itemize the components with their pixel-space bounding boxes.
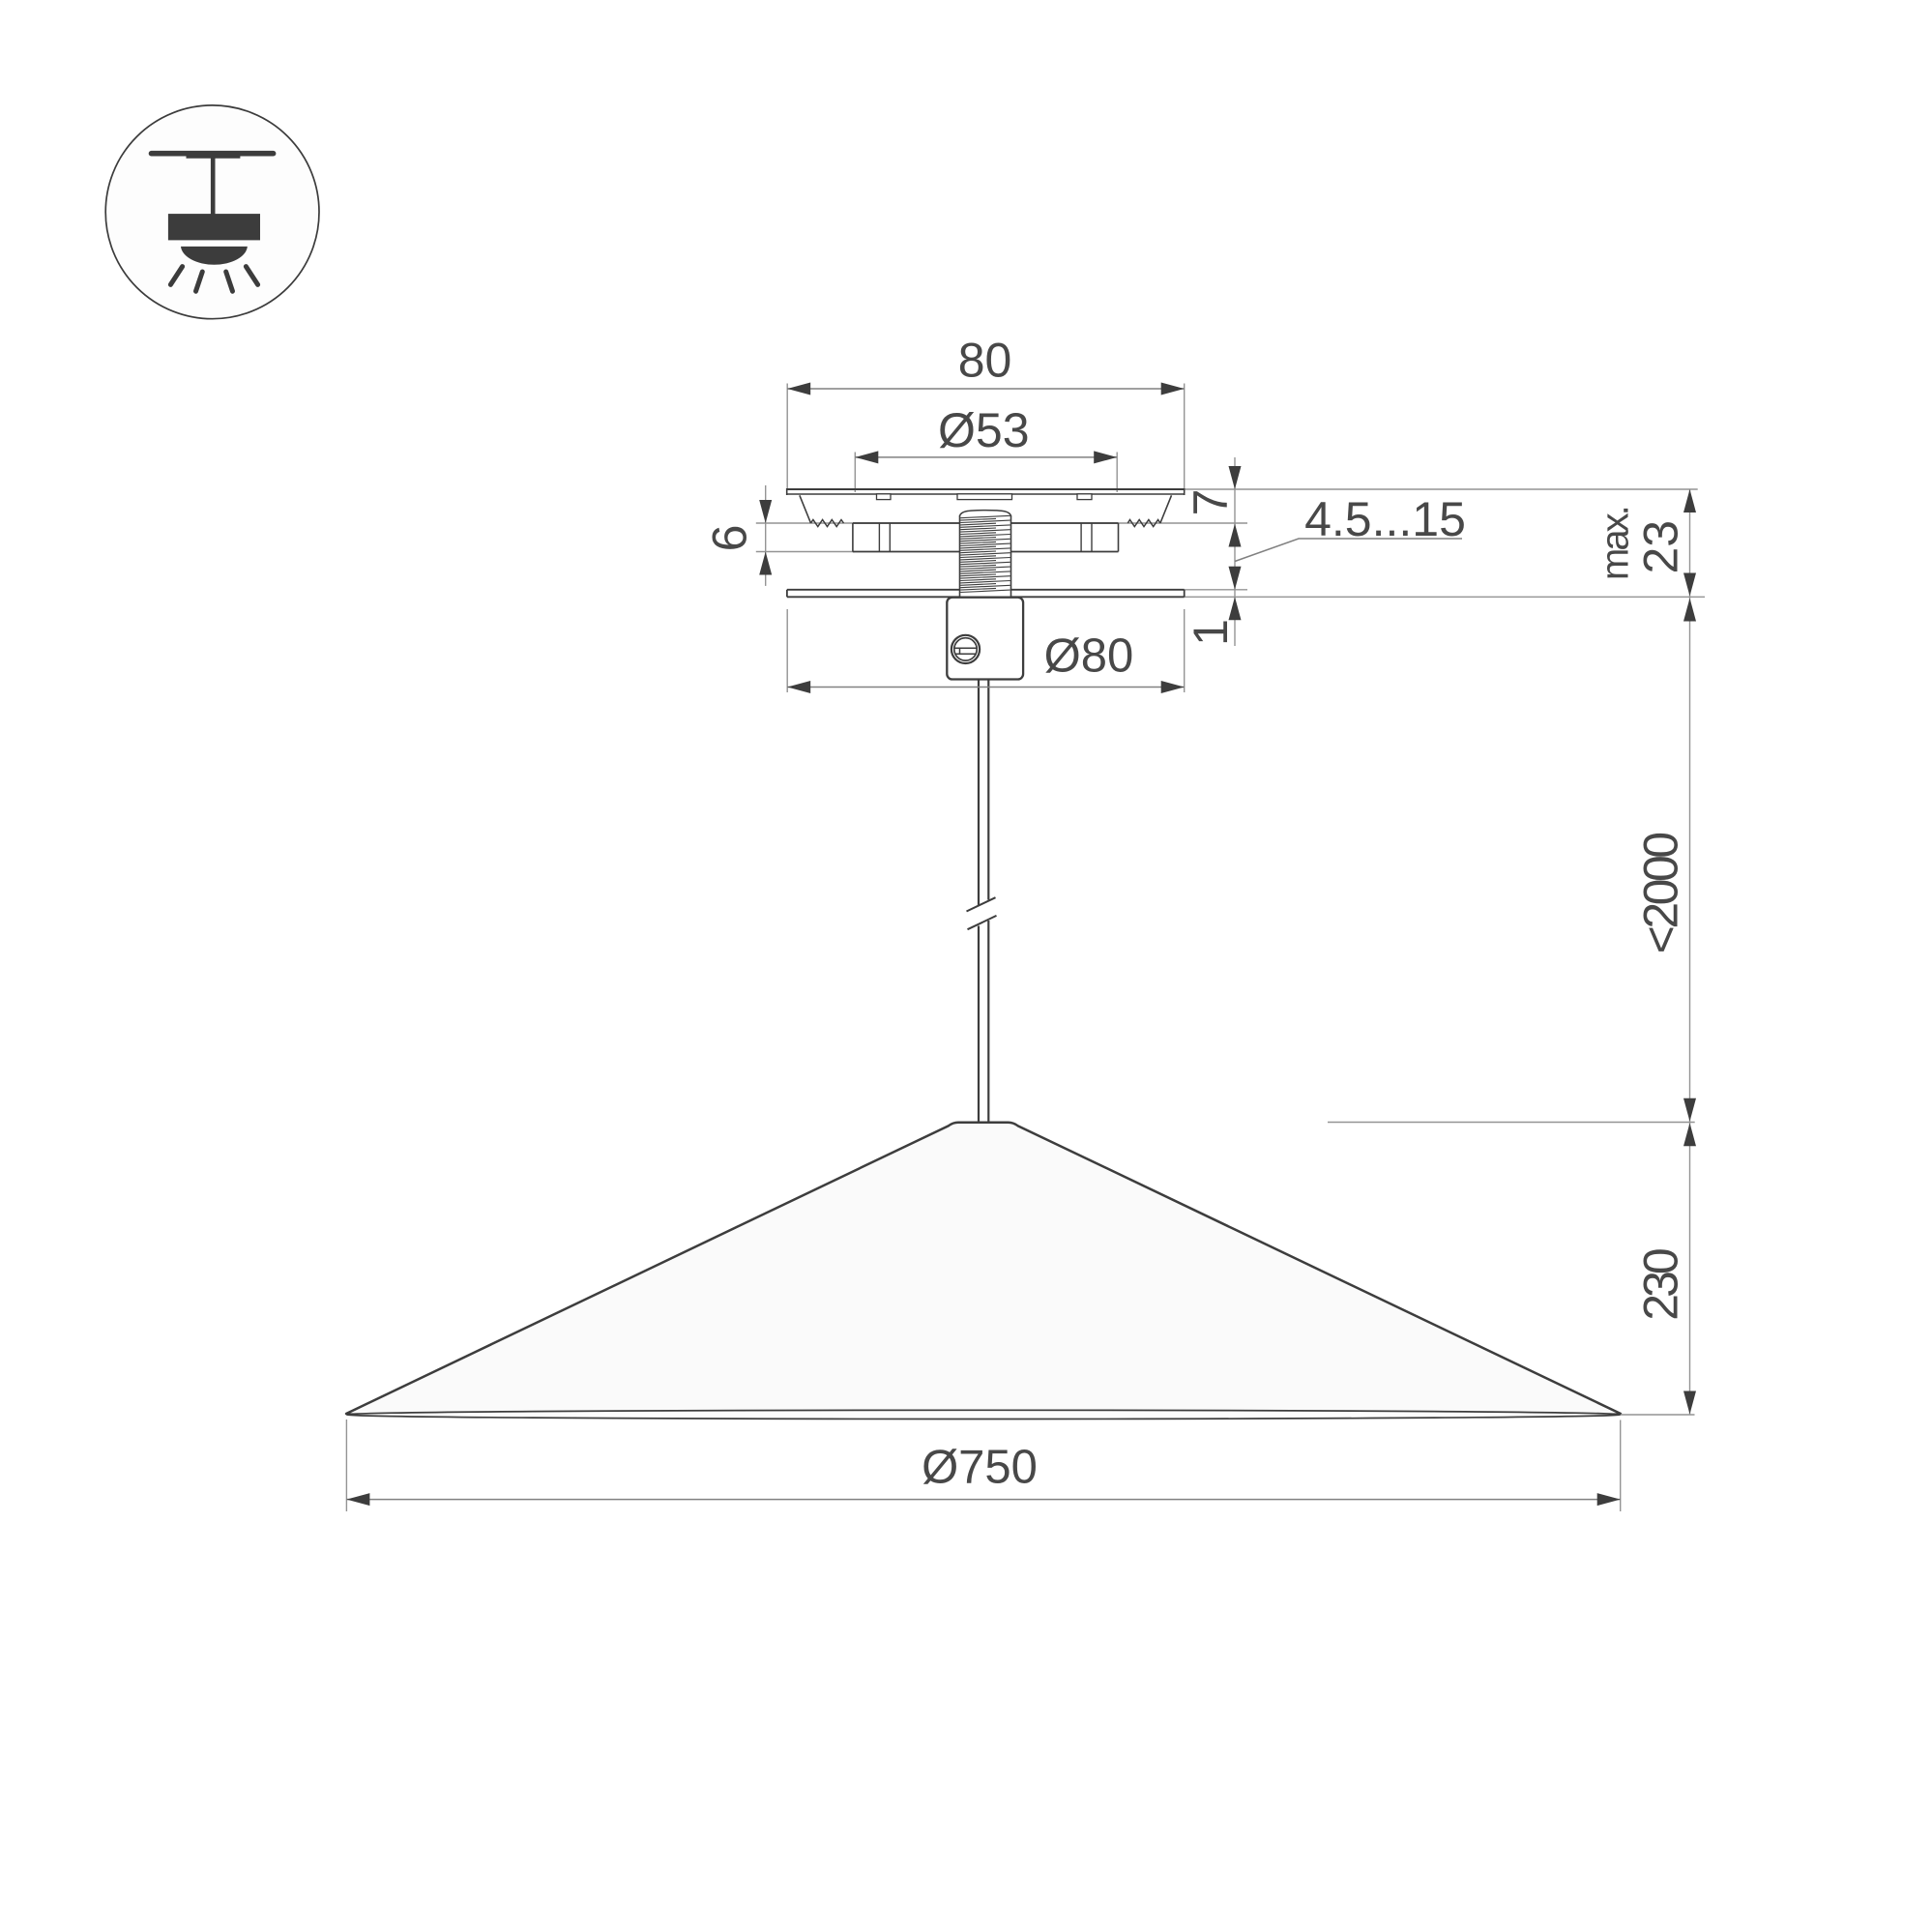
- svg-text:7: 7: [1184, 489, 1238, 516]
- svg-text:<2000: <2000: [1634, 834, 1688, 954]
- svg-text:80: 80: [958, 334, 1012, 388]
- svg-text:Ø750: Ø750: [922, 1442, 1038, 1494]
- svg-text:6: 6: [702, 525, 756, 552]
- svg-text:230: 230: [1634, 1249, 1688, 1321]
- svg-text:1: 1: [1184, 619, 1238, 646]
- svg-text:max.: max.: [1595, 508, 1637, 580]
- svg-text:Ø80: Ø80: [1044, 630, 1134, 683]
- svg-text:Ø53: Ø53: [938, 403, 1030, 457]
- svg-text:4.5...15: 4.5...15: [1304, 492, 1466, 546]
- svg-text:23: 23: [1634, 520, 1688, 574]
